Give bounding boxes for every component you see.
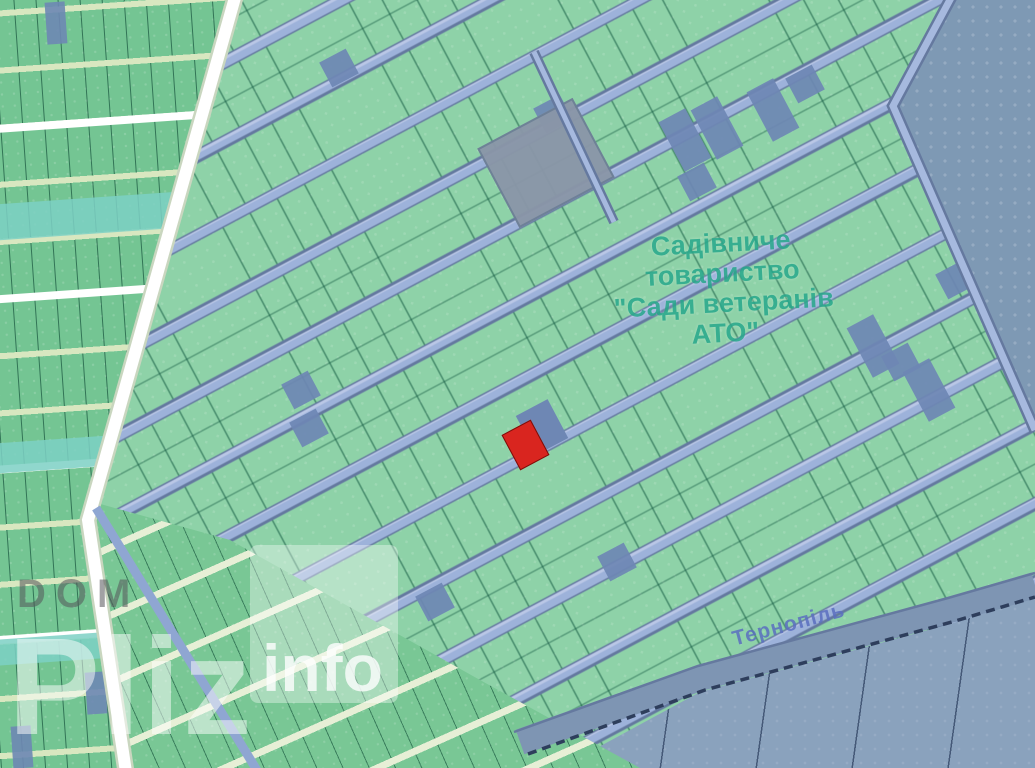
map-canvas[interactable]: Садівниче товариство "Сади ветеранів АТО…: [0, 0, 1035, 768]
blue-plot: [45, 1, 68, 44]
blue-plot: [11, 725, 34, 768]
blue-plot: [85, 671, 108, 714]
settlement-label: Садівниче товариство "Сади ветеранів АТО…: [595, 222, 851, 355]
